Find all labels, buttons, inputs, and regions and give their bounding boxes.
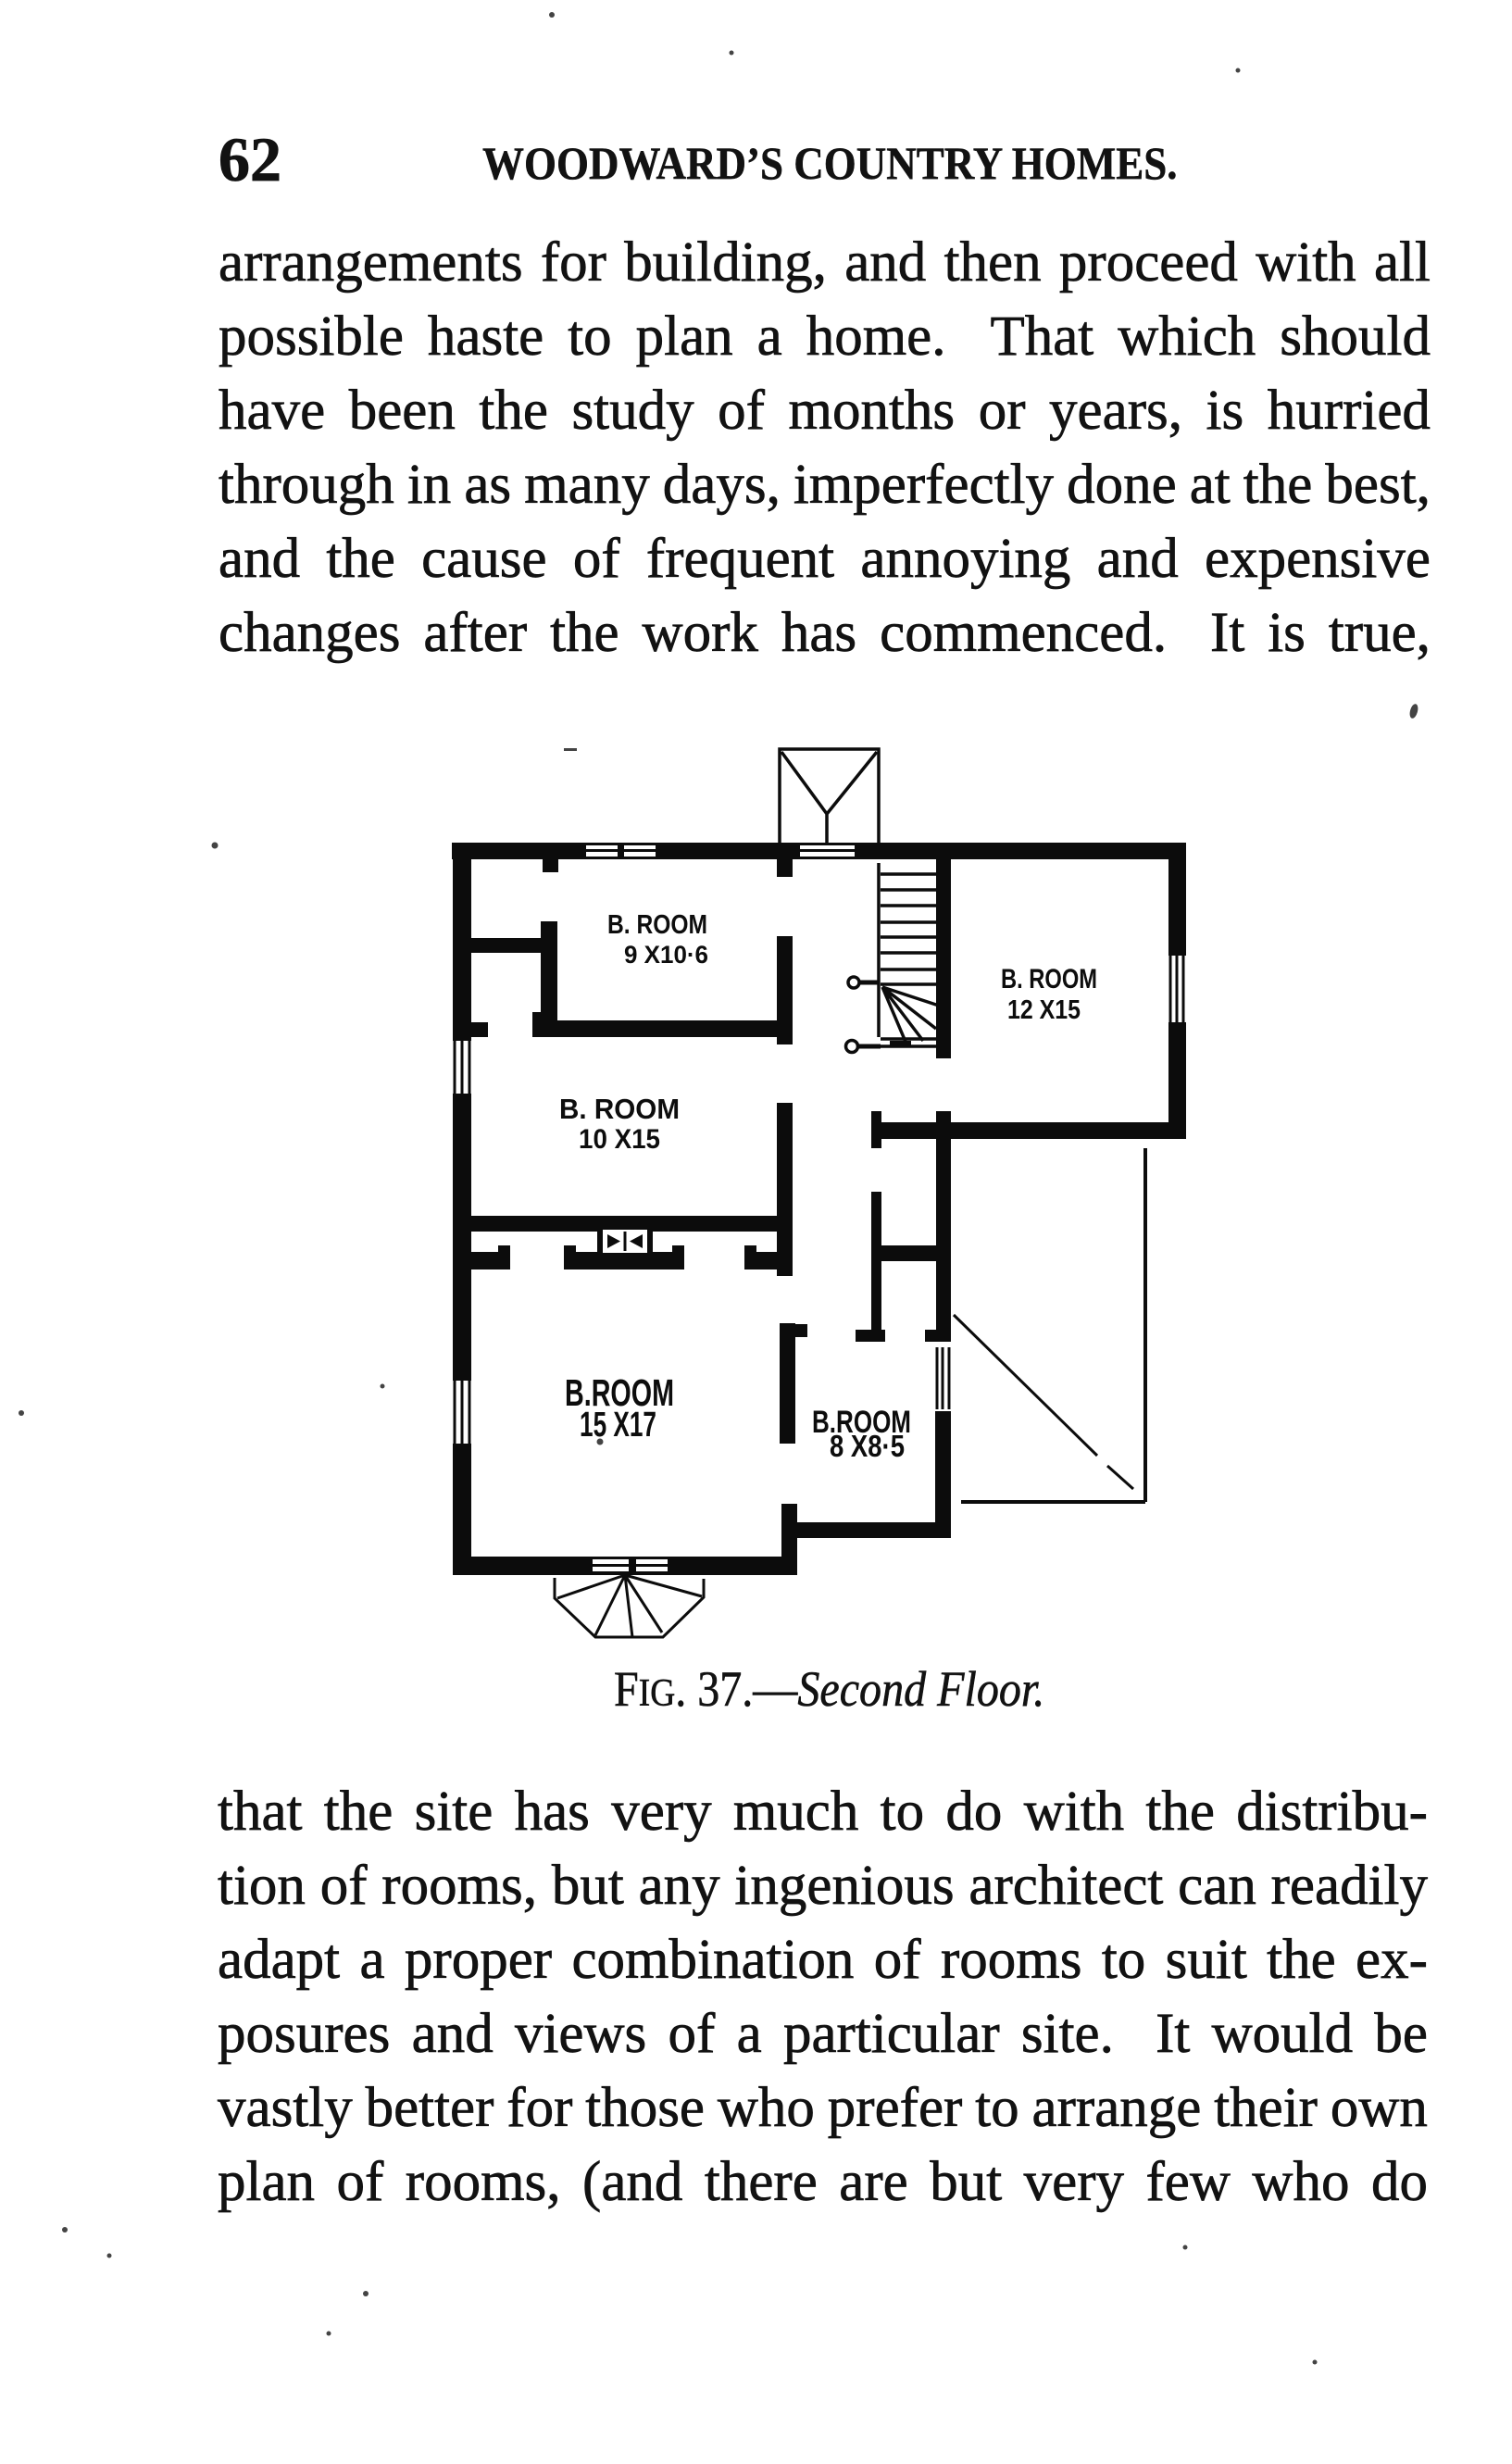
svg-text:8 X8·5: 8 X8·5 (830, 1429, 905, 1463)
svg-text:B. ROOM: B. ROOM (607, 910, 707, 940)
svg-text:15 X17: 15 X17 (580, 1406, 656, 1445)
svg-text:B. ROOM: B. ROOM (559, 1093, 680, 1125)
svg-text:9 X10·6: 9 X10·6 (624, 941, 708, 969)
svg-text:12 X15: 12 X15 (1007, 995, 1081, 1025)
svg-text:10 X15: 10 X15 (579, 1124, 660, 1155)
svg-text:B. ROOM: B. ROOM (1001, 964, 1097, 994)
